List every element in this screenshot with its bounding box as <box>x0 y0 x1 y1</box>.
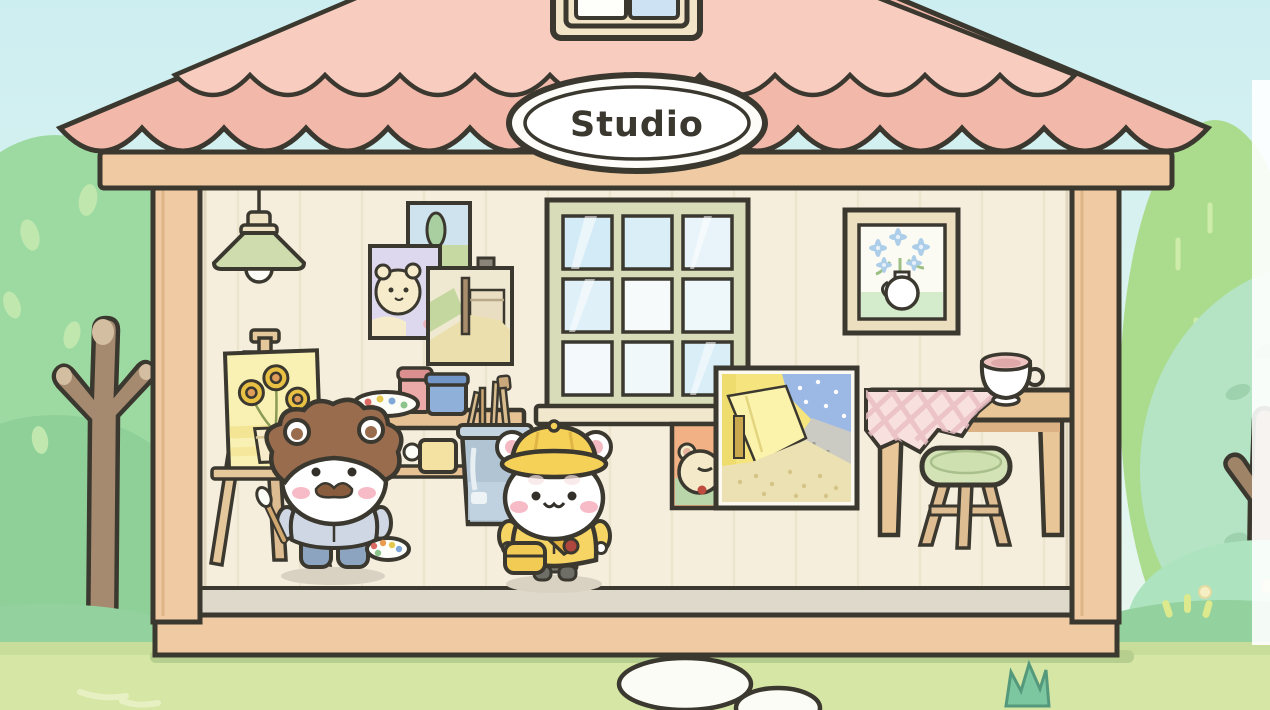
studio-sign-label: Studio <box>570 105 704 145</box>
green-stool[interactable] <box>920 448 1010 548</box>
hand-palette <box>367 538 409 560</box>
house-post-left <box>153 168 200 622</box>
framed-flower-still-life[interactable] <box>845 210 958 333</box>
wall-picture-house-landscape[interactable] <box>428 258 512 364</box>
yellow-paint-pot[interactable] <box>420 440 456 472</box>
attic-window <box>553 0 700 38</box>
white-cup <box>404 444 420 460</box>
house-base <box>155 615 1117 655</box>
satchel <box>505 543 545 573</box>
foot <box>559 566 576 580</box>
screen-edge-strip <box>1252 80 1270 645</box>
leaning-painting-cafe-terrace[interactable] <box>716 368 857 508</box>
studio-sign[interactable]: Studio <box>509 75 765 171</box>
character-shadow <box>506 575 602 593</box>
house-post-right <box>1072 168 1119 622</box>
game-scene-studio: Studio <box>0 0 1270 710</box>
character-shadow <box>281 567 385 585</box>
lamp-bulb <box>246 269 272 282</box>
